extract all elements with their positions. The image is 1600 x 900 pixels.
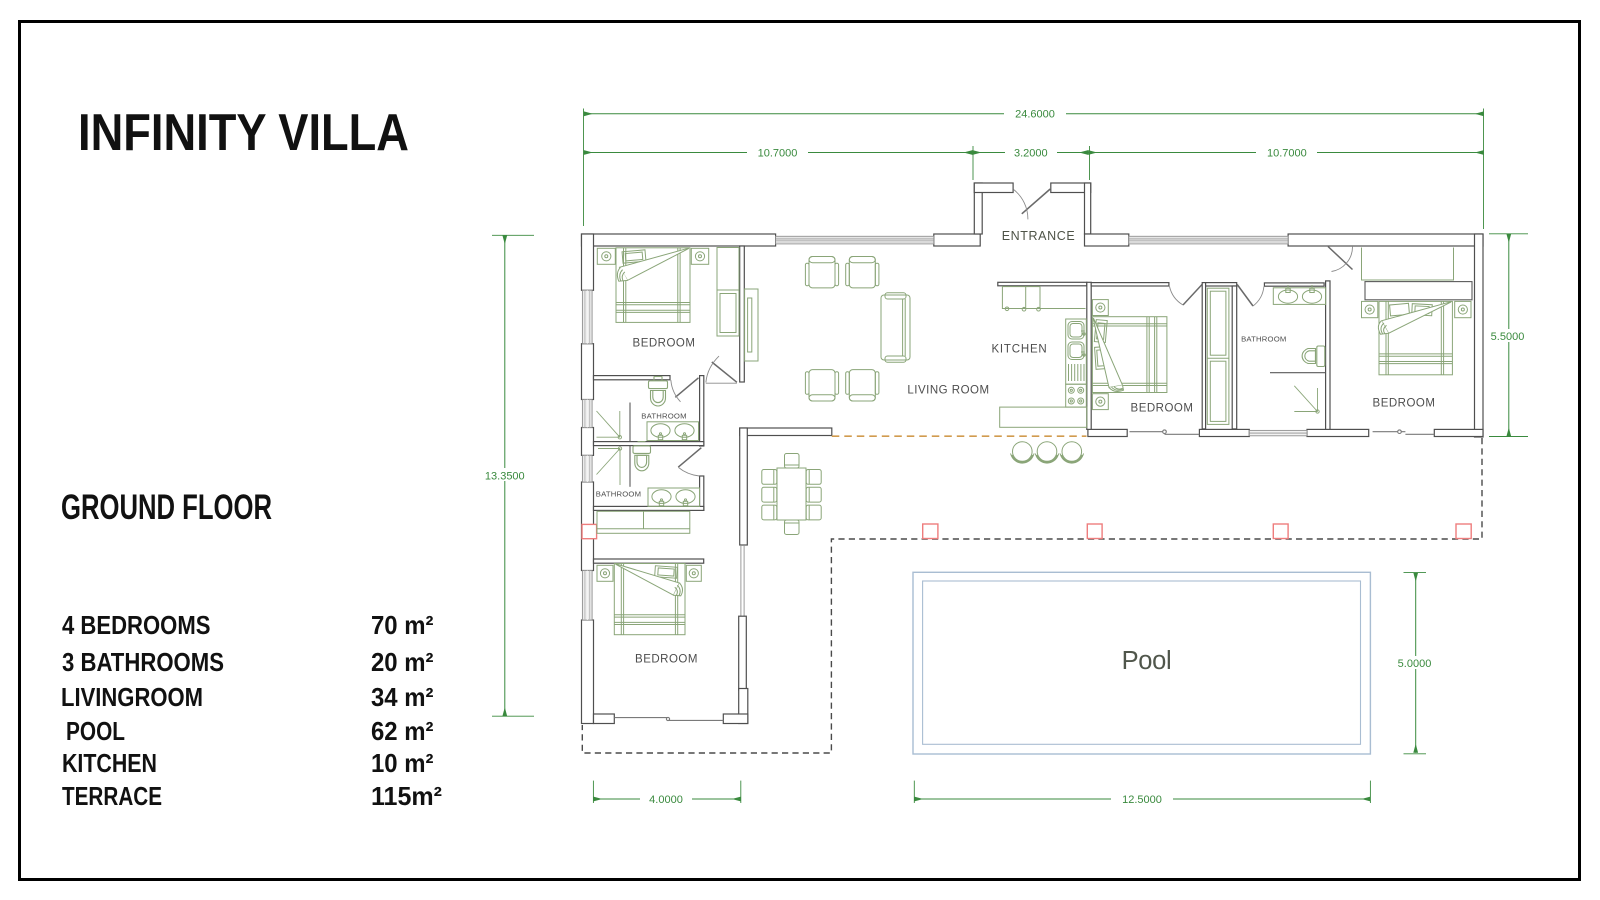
svg-text:BEDROOM: BEDROOM	[635, 654, 698, 666]
svg-text:KITCHEN: KITCHEN	[62, 748, 157, 778]
svg-text:KITCHEN: KITCHEN	[991, 344, 1047, 356]
svg-text:LIVINGROOM: LIVINGROOM	[61, 682, 203, 712]
svg-text:LIVING ROOM: LIVING ROOM	[907, 385, 989, 397]
svg-text:24.6000: 24.6000	[1015, 109, 1055, 121]
svg-text:20 m²: 20 m²	[371, 647, 434, 677]
svg-text:70 m²: 70 m²	[371, 610, 434, 640]
svg-text:5.5000: 5.5000	[1491, 331, 1525, 343]
svg-text:4 BEDROOMS: 4 BEDROOMS	[62, 610, 211, 640]
svg-text:BATHROOM: BATHROOM	[1241, 335, 1286, 344]
svg-text:BEDROOM: BEDROOM	[1131, 403, 1194, 415]
svg-text:POOL: POOL	[66, 716, 125, 746]
svg-text:5.0000: 5.0000	[1398, 658, 1432, 670]
svg-text:BATHROOM: BATHROOM	[641, 412, 686, 421]
svg-text:4.0000: 4.0000	[649, 794, 683, 806]
svg-text:BATHROOM: BATHROOM	[596, 490, 641, 499]
svg-text:INFINITY VILLA: INFINITY VILLA	[78, 104, 409, 162]
svg-text:62 m²: 62 m²	[371, 716, 434, 746]
svg-text:12.5000: 12.5000	[1122, 794, 1162, 806]
svg-text:115m²: 115m²	[371, 781, 442, 811]
svg-text:10.7000: 10.7000	[758, 147, 798, 159]
svg-text:BEDROOM: BEDROOM	[633, 338, 696, 350]
svg-text:Pool: Pool	[1122, 647, 1172, 675]
svg-text:ENTRANCE: ENTRANCE	[1002, 229, 1076, 243]
svg-text:34 m²: 34 m²	[371, 682, 434, 712]
svg-text:TERRACE: TERRACE	[62, 781, 162, 811]
svg-text:10 m²: 10 m²	[371, 748, 434, 778]
svg-text:GROUND FLOOR: GROUND FLOOR	[61, 488, 272, 527]
svg-text:3 BATHROOMS: 3 BATHROOMS	[62, 647, 224, 677]
svg-text:10.7000: 10.7000	[1267, 147, 1307, 159]
svg-text:BEDROOM: BEDROOM	[1373, 398, 1436, 410]
svg-text:13.3500: 13.3500	[485, 471, 525, 483]
svg-text:3.2000: 3.2000	[1014, 147, 1048, 159]
